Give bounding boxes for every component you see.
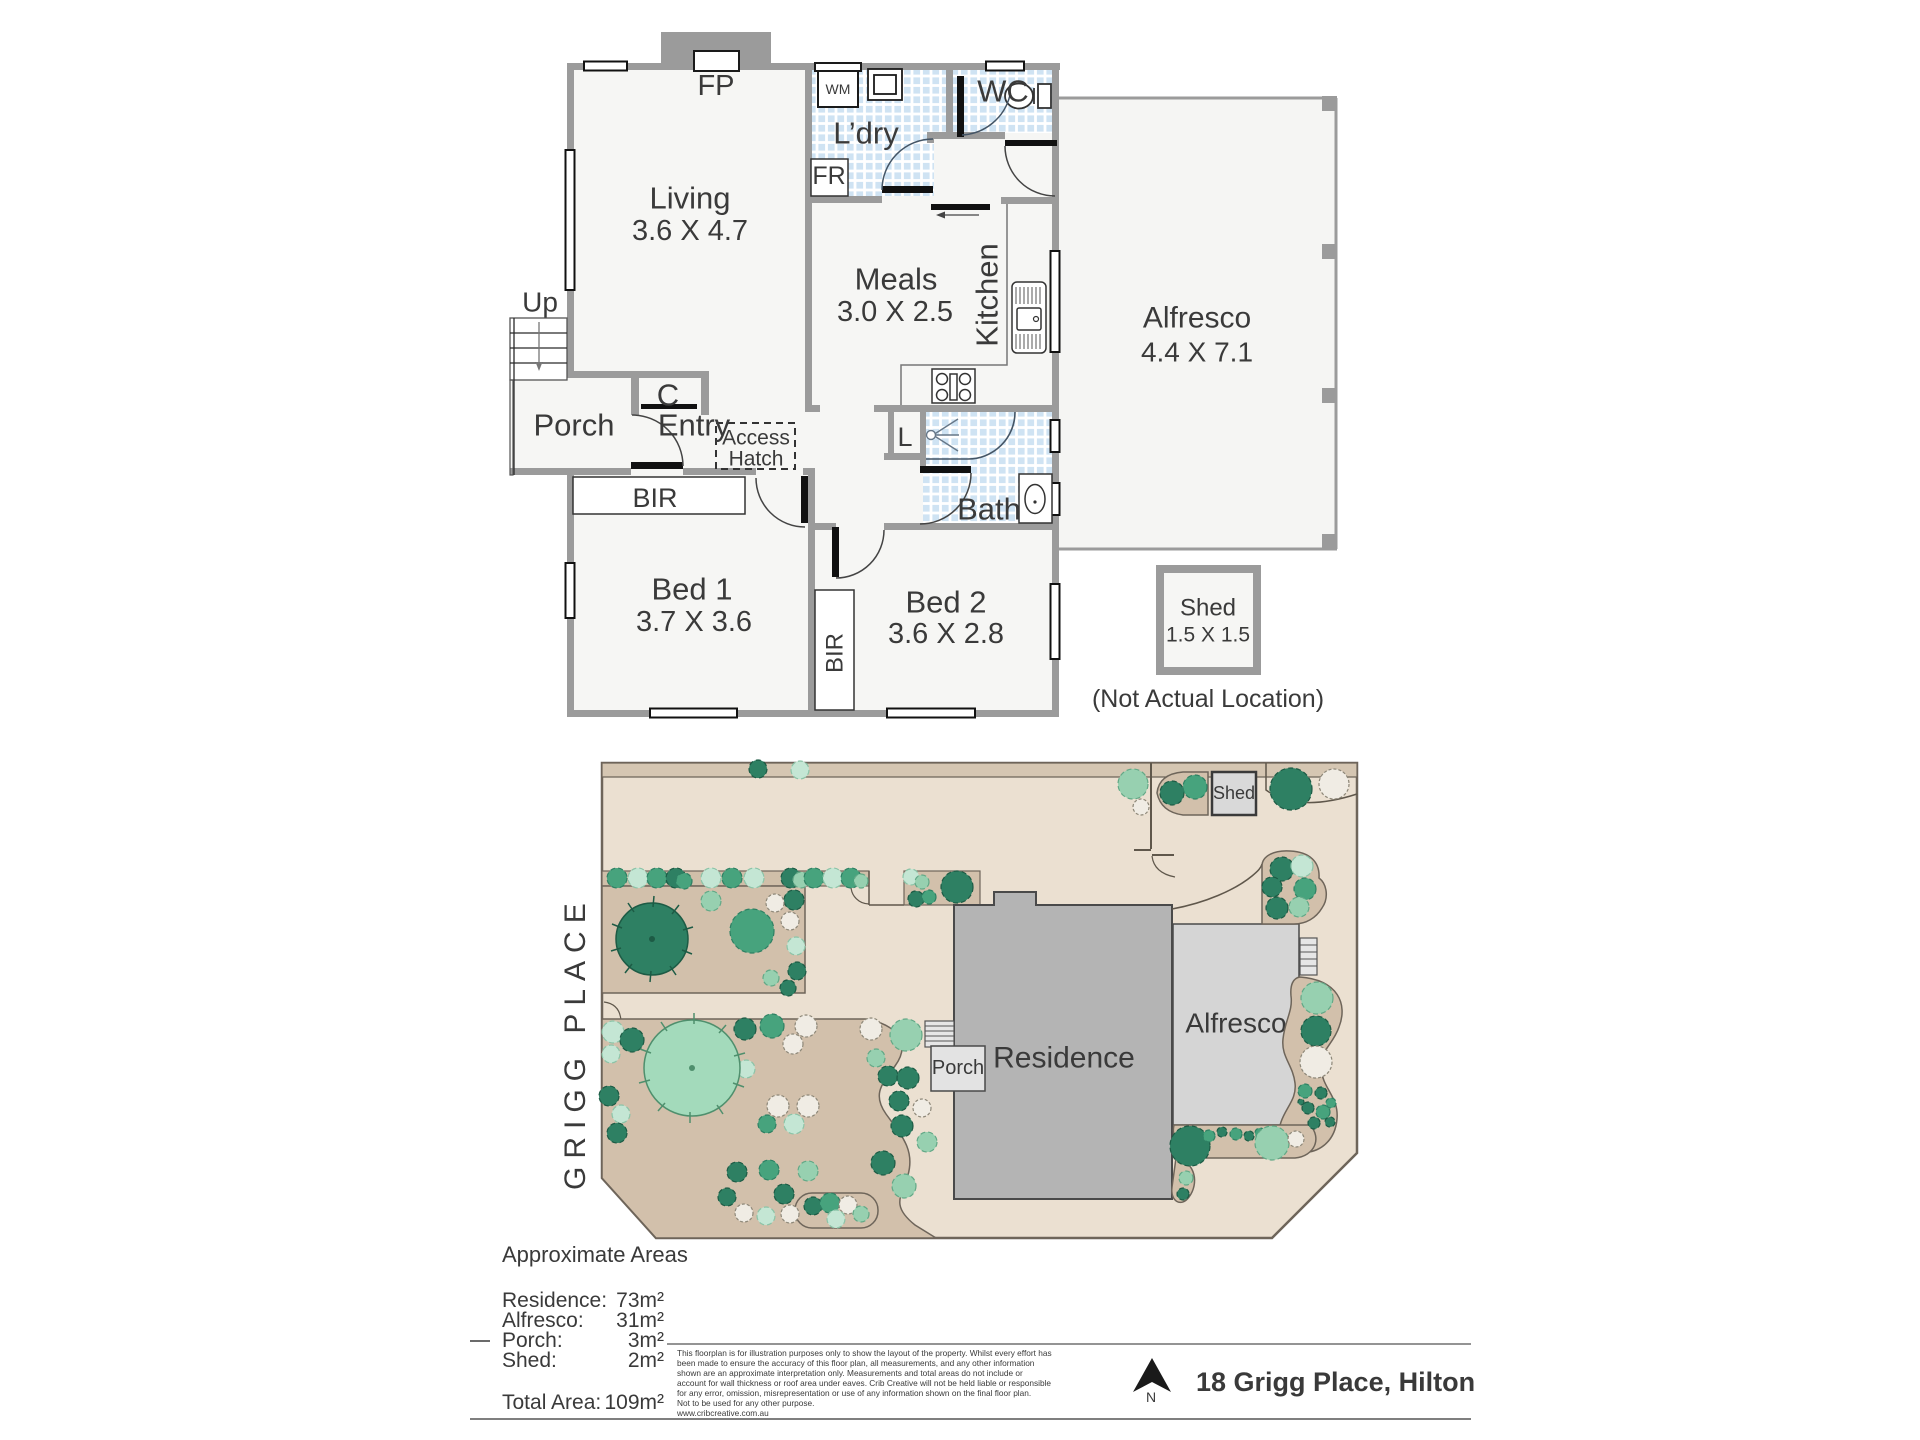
svg-text:Shed: Shed xyxy=(1213,783,1255,803)
svg-text:Kitchen: Kitchen xyxy=(970,243,1005,346)
svg-text:Alfresco: Alfresco xyxy=(1143,302,1251,335)
svg-text:(Not Actual Location): (Not Actual Location) xyxy=(1092,685,1324,713)
svg-text:www.cribcreative.com.au: www.cribcreative.com.au xyxy=(676,1408,769,1418)
svg-text:Hatch: Hatch xyxy=(729,448,784,471)
svg-text:Shed: Shed xyxy=(1180,595,1236,622)
svg-text:for any error, omission, misre: for any error, omission, misrepresentati… xyxy=(677,1388,1031,1398)
svg-text:Meals: Meals xyxy=(855,262,938,297)
svg-text:Alfresco: Alfresco xyxy=(1185,1008,1286,1039)
svg-text:C: C xyxy=(657,378,679,413)
svg-text:This floorplan is for illustra: This floorplan is for illustration purpo… xyxy=(677,1348,1052,1358)
svg-text:3.6 X 4.7: 3.6 X 4.7 xyxy=(632,215,748,247)
svg-text:L’dry: L’dry xyxy=(833,116,899,151)
svg-text:account for wall thickness or: account for wall thickness or roof area … xyxy=(677,1378,1051,1388)
svg-text:Bed 2: Bed 2 xyxy=(905,585,986,620)
svg-text:Bath: Bath xyxy=(957,492,1021,527)
svg-text:3.6 X 2.8: 3.6 X 2.8 xyxy=(888,618,1004,650)
svg-text:FP: FP xyxy=(697,70,734,102)
svg-text:2m²: 2m² xyxy=(628,1349,664,1372)
svg-text:WC: WC xyxy=(977,74,1029,109)
svg-text:Total Area:: Total Area: xyxy=(502,1391,601,1414)
svg-text:BIR: BIR xyxy=(632,483,677,513)
svg-text:FR: FR xyxy=(812,162,845,190)
svg-text:Living: Living xyxy=(650,181,731,216)
svg-text:3.0 X 2.5: 3.0 X 2.5 xyxy=(837,296,953,328)
svg-text:WM: WM xyxy=(826,81,851,97)
svg-text:N: N xyxy=(1146,1389,1156,1405)
svg-text:Porch: Porch xyxy=(534,408,615,443)
svg-text:Not to be used for any other p: Not to be used for any other purpose. xyxy=(677,1398,814,1408)
svg-text:4.4 X 7.1: 4.4 X 7.1 xyxy=(1141,337,1253,368)
svg-text:Entry: Entry xyxy=(658,408,731,443)
svg-text:1.5 X 1.5: 1.5 X 1.5 xyxy=(1166,624,1250,647)
svg-text:109m²: 109m² xyxy=(604,1391,664,1414)
svg-text:Residence: Residence xyxy=(993,1042,1135,1075)
svg-text:BIR: BIR xyxy=(822,633,849,673)
svg-text:Access: Access xyxy=(722,427,790,450)
svg-text:3.7 X 3.6: 3.7 X 3.6 xyxy=(636,606,752,638)
svg-text:Approximate Areas: Approximate Areas xyxy=(502,1242,688,1267)
svg-text:Bed 1: Bed 1 xyxy=(651,572,732,607)
svg-text:GRIGG PLACE: GRIGG PLACE xyxy=(559,895,592,1190)
svg-text:shown are an approximate inter: shown are an approximate interpretation … xyxy=(677,1368,1023,1378)
svg-text:18 Grigg Place, Hilton: 18 Grigg Place, Hilton xyxy=(1196,1367,1475,1397)
svg-text:Up: Up xyxy=(522,287,558,318)
svg-text:Porch: Porch xyxy=(932,1057,984,1079)
svg-text:been made to ensure the accura: been made to ensure the accuracy of this… xyxy=(677,1358,1035,1368)
svg-text:Shed:: Shed: xyxy=(502,1349,557,1372)
svg-text:L: L xyxy=(897,422,912,452)
